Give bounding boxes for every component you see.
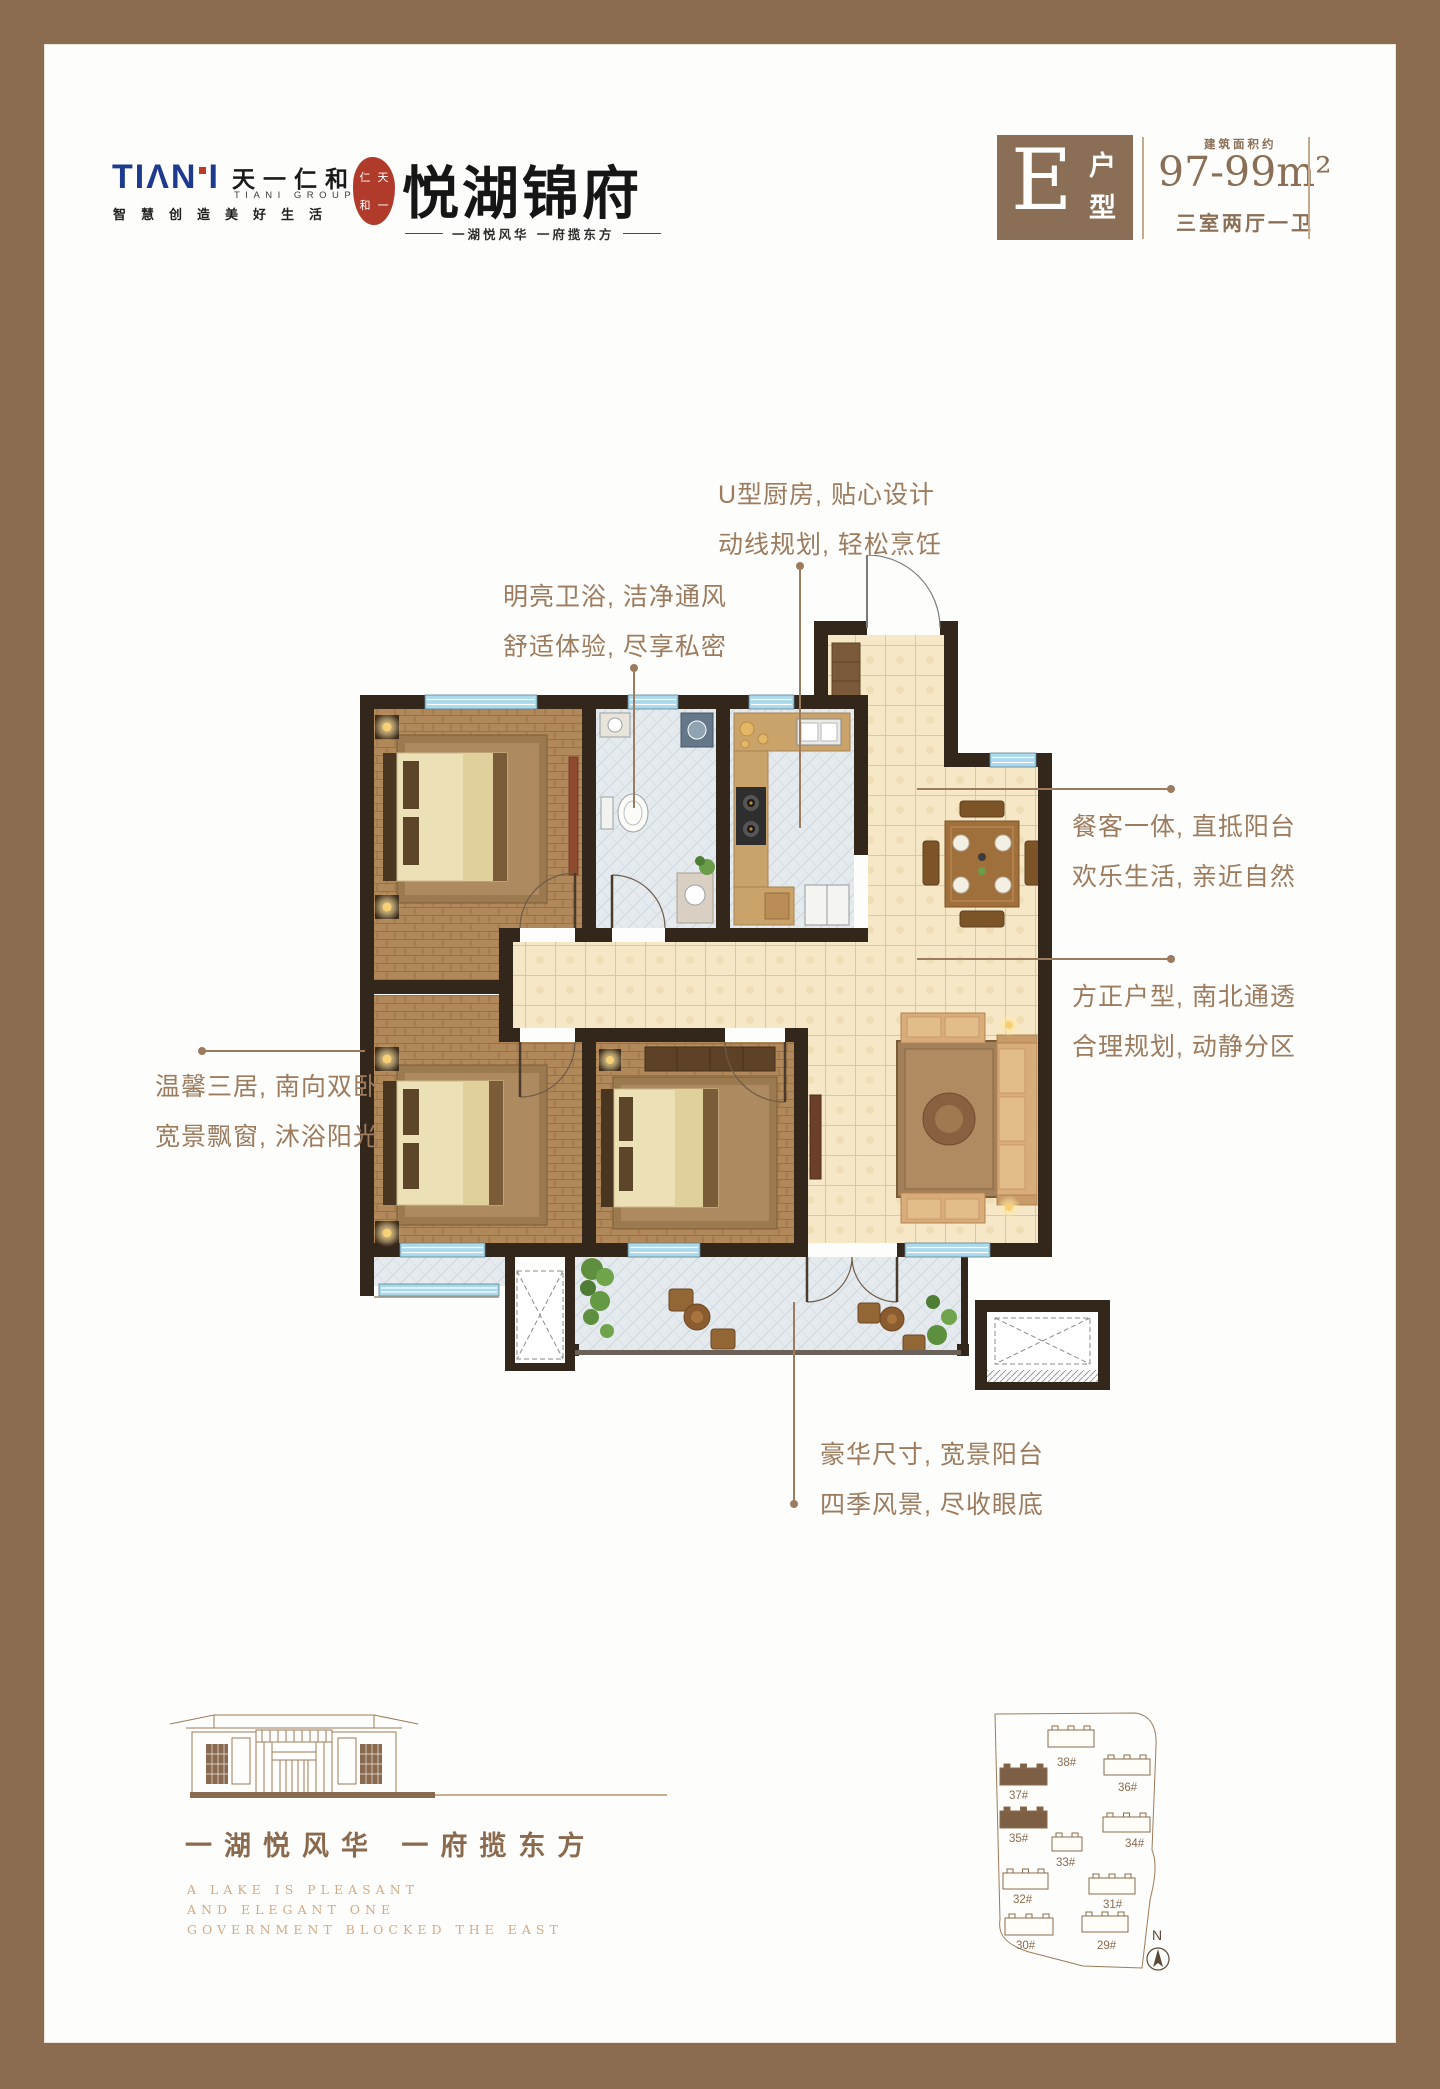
site-building-label: 38# (1057, 1757, 1077, 1769)
leader-line (793, 1302, 795, 1504)
annotation-line: 合理规划, 动静分区 (1072, 1022, 1296, 1072)
site-building-label: 35# (1009, 1833, 1029, 1845)
developer-group-en: TIANI GROUP (234, 190, 356, 201)
leader-dot (790, 1500, 798, 1508)
room-layout: 三室两厅一卫 (1176, 207, 1314, 236)
site-building-label: 31# (1103, 1899, 1123, 1911)
compass-icon: N (1147, 1927, 1169, 1970)
footer-slogan-en: A LAKE IS PLEASANT AND ELEGANT ONE GOVER… (187, 1880, 563, 1940)
building-elevation-sketch (168, 1708, 420, 1798)
leader-line (205, 1050, 365, 1052)
ground-line (190, 1792, 435, 1798)
footer-en-line: GOVERNMENT BLOCKED THE EAST (187, 1920, 563, 1940)
annotation-line: 欢乐生活, 亲近自然 (1072, 852, 1296, 902)
seal-char: 仁 (360, 169, 371, 185)
leader-line (633, 672, 635, 808)
annotation-dining: 餐客一体, 直抵阳台 欢乐生活, 亲近自然 (1072, 802, 1296, 902)
site-plan: 38#36#37#35#33#34#32#31#30#29# N (985, 1702, 1185, 1982)
divider (1308, 137, 1310, 239)
site-building: 29# (1082, 1912, 1128, 1952)
project-tagline: 一湖悦风华 一府揽东方 (405, 224, 661, 243)
brand-seal: 仁 天 和 一 (353, 157, 395, 225)
developer-name-cn: 天一仁和 (232, 160, 356, 194)
ac-niche (517, 1271, 563, 1359)
site-building-label: 32# (1013, 1894, 1033, 1906)
project-name: 悦湖锦府 (402, 148, 642, 230)
site-building-label: 34# (1125, 1838, 1145, 1850)
annotation-line: 方正户型, 南北通透 (1072, 972, 1296, 1022)
annotation-line: 明亮卫浴, 洁净通风 (503, 572, 727, 622)
annotation-bedrooms: 温馨三居, 南向双卧 宽景飘窗, 沐浴阳光 (155, 1062, 379, 1162)
balcony-railing (575, 1350, 961, 1355)
site-building: 32# (1003, 1869, 1048, 1906)
seal-char: 天 (378, 169, 389, 185)
annotation-layout: 方正户型, 南北通透 合理规划, 动静分区 (1072, 972, 1296, 1072)
unit-type-badge: E 户型 (997, 135, 1133, 240)
site-building: 38# (1048, 1726, 1094, 1769)
site-building: 36# (1104, 1755, 1150, 1794)
logo-apostrophe-icon (199, 167, 206, 174)
site-building: 33# (1052, 1833, 1082, 1869)
site-building: 35# (1000, 1807, 1047, 1845)
floorplan-drawing (345, 555, 1125, 1400)
site-building: 30# (1005, 1914, 1053, 1952)
annotation-line: U型厨房, 贴心设计 (718, 470, 942, 520)
equipment-platform (987, 1312, 1098, 1382)
logo-text-right: I (208, 158, 219, 196)
annotation-line: 宽景飘窗, 沐浴阳光 (155, 1112, 379, 1162)
unit-type-label: 户型 (1089, 145, 1119, 229)
annotation-line: 豪华尺寸, 宽景阳台 (820, 1430, 1044, 1480)
site-buildings: 38#36#37#35#33#34#32#31#30#29# (1000, 1726, 1150, 1952)
site-building-label: 36# (1118, 1782, 1138, 1794)
site-building-label: 29# (1097, 1940, 1117, 1952)
leader-line (917, 958, 1171, 960)
seal-char: 和 (360, 197, 371, 213)
site-building-label: 33# (1056, 1857, 1076, 1869)
annotation-line: 舒适体验, 尽享私密 (503, 622, 727, 672)
site-building-label: 37# (1009, 1790, 1029, 1802)
ground-line-extension (435, 1794, 667, 1796)
divider (1142, 137, 1144, 239)
seal-char: 一 (378, 197, 389, 213)
area-value: 97-99m² (1158, 148, 1332, 196)
developer-slogan: 智慧创造美好生活 (113, 204, 337, 223)
unit-letter: E (1011, 131, 1072, 229)
developer-logo: TIΛNI (112, 158, 220, 197)
annotation-kitchen: U型厨房, 贴心设计 动线规划, 轻松烹饪 (718, 470, 942, 570)
annotation-line: 温馨三居, 南向双卧 (155, 1062, 379, 1112)
site-building: 37# (1000, 1764, 1047, 1802)
compass-label: N (1152, 1927, 1162, 1943)
annotation-balcony: 豪华尺寸, 宽景阳台 四季风景, 尽收眼底 (820, 1430, 1044, 1530)
footer-slogan-cn: 一湖悦风华 一府揽东方 (185, 1824, 596, 1863)
leader-dot (1167, 785, 1175, 793)
site-building: 31# (1089, 1874, 1135, 1911)
footer-en-line: AND ELEGANT ONE (187, 1900, 563, 1920)
project-tagline-text: 一湖悦风华 一府揽东方 (452, 224, 614, 243)
annotation-line: 餐客一体, 直抵阳台 (1072, 802, 1296, 852)
footer-en-line: A LAKE IS PLEASANT (187, 1880, 563, 1900)
floorplan-poster: TIΛNI 天一仁和 TIANI GROUP 智慧创造美好生活 仁 天 和 一 … (0, 0, 1440, 2089)
leader-line (799, 570, 801, 828)
logo-text-left: TIΛN (112, 158, 197, 196)
leader-line (917, 788, 1171, 790)
annotation-bathroom: 明亮卫浴, 洁净通风 舒适体验, 尽享私密 (503, 572, 727, 672)
site-building-label: 30# (1016, 1940, 1036, 1952)
site-building: 34# (1103, 1813, 1150, 1850)
annotation-line: 动线规划, 轻松烹饪 (718, 520, 942, 570)
annotation-line: 四季风景, 尽收眼底 (820, 1480, 1044, 1530)
leader-dot (1167, 955, 1175, 963)
